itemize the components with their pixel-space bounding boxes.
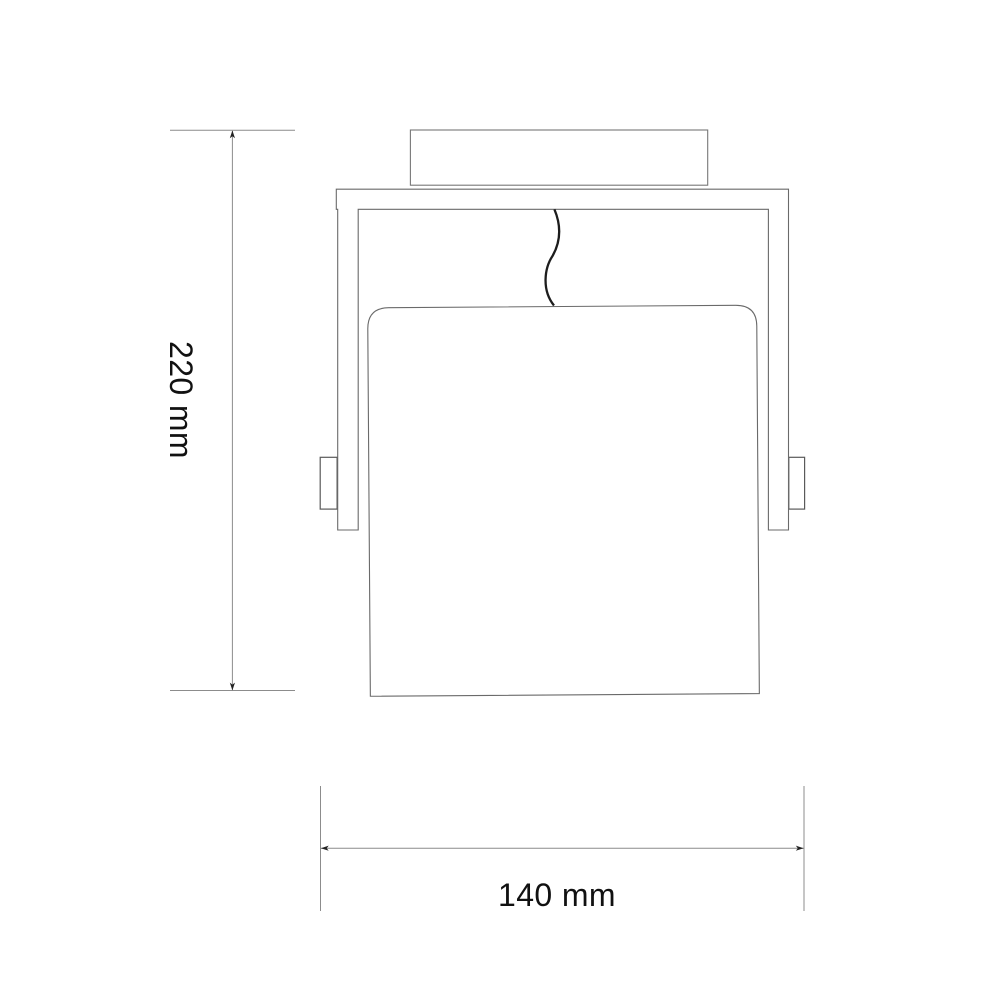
svg-text:220 mm: 220 mm bbox=[163, 341, 199, 459]
svg-text:140 mm: 140 mm bbox=[498, 877, 616, 913]
